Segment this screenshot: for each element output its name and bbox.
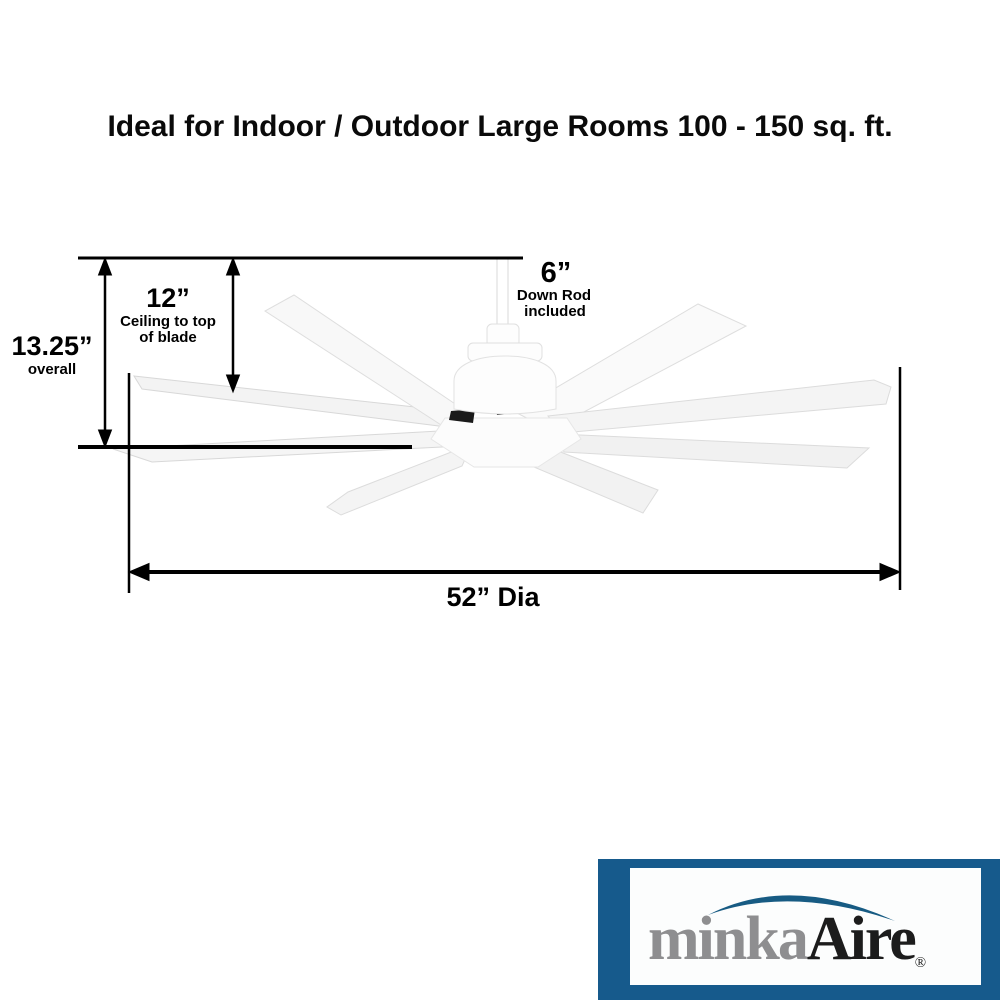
down-rod <box>497 258 508 328</box>
brand-panel: minkaAire® <box>598 859 1000 1000</box>
ceiling-to-blade-label-line1: Ceiling to top <box>120 314 216 330</box>
fan-blade-lower-left <box>327 444 472 515</box>
ceiling-to-blade-label-line2: of blade <box>139 330 197 346</box>
fan-blade-right-lower <box>558 434 869 468</box>
product-dimension-diagram: Ideal for Indoor / Outdoor Large Rooms 1… <box>0 0 1000 1000</box>
arrowhead-down <box>99 430 112 447</box>
registered-trademark-symbol: ® <box>915 932 926 994</box>
arrowhead-up <box>227 258 240 275</box>
down-rod-value: 6” <box>541 257 572 290</box>
down-rod-label-line1: Down Rod <box>517 288 591 304</box>
brand-wordmark: minkaAire® <box>648 908 926 986</box>
down-rod-label-line2: included <box>524 304 586 320</box>
brand-name-aire: Aire <box>807 905 915 973</box>
diameter-value: 52” Dia <box>446 582 539 613</box>
ceiling-to-blade-value: 12” <box>146 283 190 314</box>
overall-height-label: overall <box>28 362 76 378</box>
motor-bell-housing <box>454 356 556 414</box>
arrowhead-left <box>129 564 149 581</box>
arrowhead-right <box>880 564 900 581</box>
fan-dimension-illustration <box>0 0 1000 1000</box>
brand-name-minka: minka <box>648 905 807 973</box>
arrowhead-up <box>99 258 112 275</box>
brand-logo: minkaAire® <box>630 868 981 985</box>
overall-height-value: 13.25” <box>11 331 92 362</box>
